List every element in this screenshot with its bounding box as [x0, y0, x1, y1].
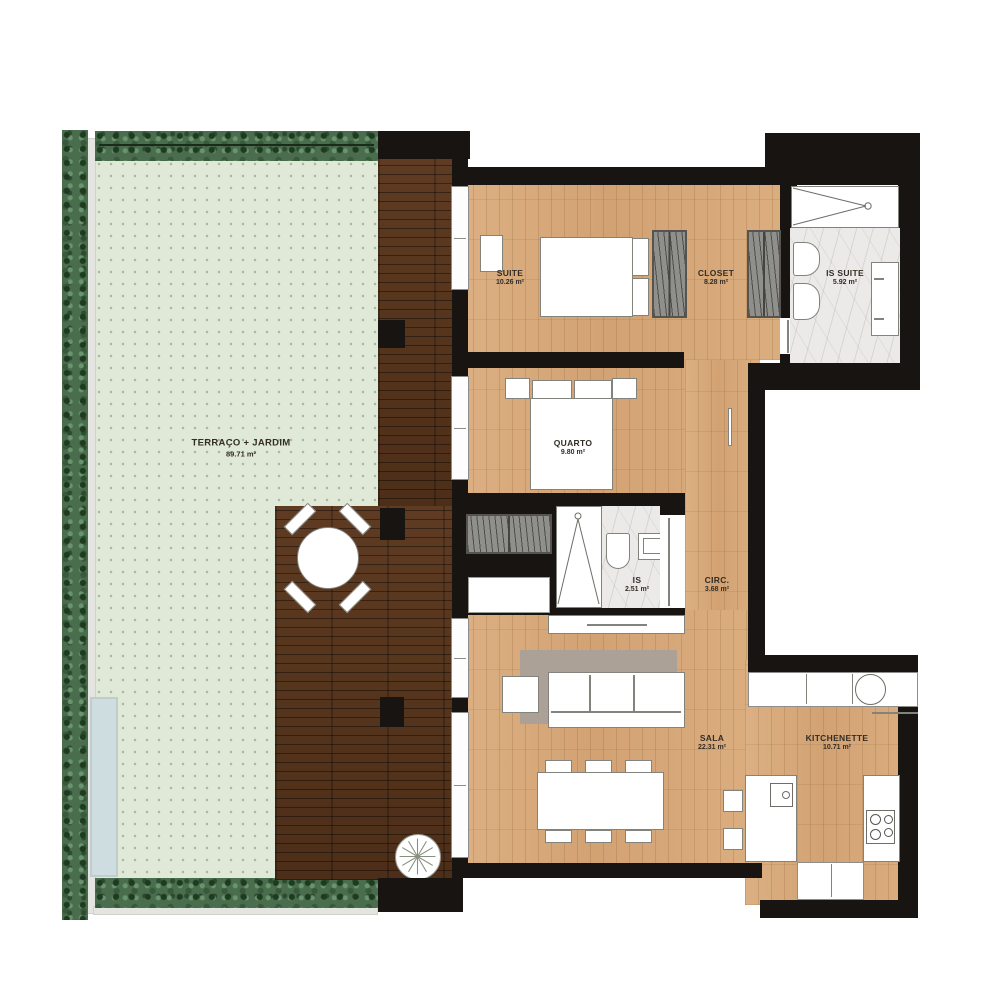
circ-name: CIRC. [705, 575, 730, 585]
quarto-pillow-2 [574, 380, 612, 400]
suite-label: SUITE 10.26 m² [496, 268, 524, 286]
quarto-wardrobe [466, 514, 552, 554]
kitchenette-area: 10.71 m² [806, 744, 869, 751]
burner-4 [884, 828, 893, 837]
island-stool-1 [723, 790, 743, 812]
burner-2 [884, 815, 893, 824]
wall-deck-top [378, 131, 470, 159]
closet-wardrobe-right [747, 230, 781, 318]
oven-knob [782, 791, 790, 799]
is-suite-name: IS SUITE [826, 268, 864, 278]
wall-kitchen-north [760, 655, 918, 672]
is-suite-label: IS SUITE 5.92 m² [826, 268, 864, 286]
wall-north-suite [452, 167, 765, 185]
dining-chair-s1 [545, 830, 572, 843]
window-sala-2 [451, 712, 469, 858]
quarto-area: 9.80 m² [554, 449, 592, 456]
sofa-seam-2 [633, 675, 635, 711]
window-sala-1 [451, 618, 469, 698]
counter-seam-1 [806, 674, 807, 704]
sala-armchair [502, 676, 539, 713]
closet-name: CLOSET [698, 268, 734, 278]
is-door-leaf [668, 518, 670, 606]
floor-plan: TERRAÇO + JARDIM 89.71 m² SUITE 10.26 m²… [0, 0, 984, 1000]
circ-label: CIRC. 3.68 m² [705, 575, 730, 593]
is-door-gap [660, 515, 685, 608]
kitchen-counter-top [748, 672, 918, 707]
is-suite-vanity [871, 262, 899, 336]
wall-kitchen-south [760, 900, 918, 918]
window-suite [451, 186, 469, 290]
counter-edge-line [872, 712, 918, 714]
is-area: 2.51 m² [625, 586, 649, 593]
wall-sala-south [452, 863, 762, 878]
terrace-label: TERRAÇO + JARDIM 89.71 m² [191, 438, 290, 459]
kitchenette-label: KITCHENETTE 10.71 m² [806, 733, 869, 751]
sofa-backrest-line [551, 711, 681, 713]
wall-north-bath [765, 133, 920, 185]
sala-area: 22.31 m² [698, 744, 726, 751]
quarto-nightstand-left [505, 378, 530, 399]
kitchen-island [745, 775, 797, 862]
suite-name: SUITE [496, 268, 524, 278]
is-suite-shower [791, 186, 899, 228]
kitchenette-name: KITCHENETTE [806, 733, 869, 743]
kitchen-counter-right [863, 775, 900, 862]
wall-suite-quarto [452, 352, 684, 368]
oven-icon [770, 783, 793, 807]
quarto-name: QUARTO [554, 438, 592, 448]
deck-post-3 [380, 697, 404, 727]
terrace-area: 89.71 m² [191, 450, 290, 459]
wall-corridor-east [748, 368, 765, 672]
burner-1 [870, 814, 881, 825]
terrace-name: TERRAÇO + JARDIM [191, 438, 290, 449]
door-quarto-leaf [728, 408, 732, 446]
suite-area: 10.26 m² [496, 279, 524, 286]
hedge-bottom [95, 878, 378, 908]
sala-sofa [548, 672, 685, 728]
closet-label: CLOSET 8.28 m² [698, 268, 734, 286]
closet-area: 8.28 m² [698, 279, 734, 286]
quarto-nightstand-right [612, 378, 637, 399]
sala-niche-cabinet [468, 577, 550, 613]
hedge-top [95, 131, 378, 161]
deck-post-1 [378, 320, 405, 348]
suite-bed [540, 237, 633, 317]
sofa-seam-1 [589, 675, 591, 711]
is-shower [556, 506, 602, 608]
wall-south-bath [748, 363, 920, 390]
outdoor-round-table [297, 527, 359, 589]
door-is-suite-leaf [787, 320, 789, 353]
dining-chair-s2 [585, 830, 612, 843]
counter-seam-2 [852, 674, 853, 704]
window-quarto [451, 376, 469, 480]
is-suite-area: 5.92 m² [826, 279, 864, 286]
suite-pillow-1 [632, 238, 649, 276]
suite-bench [480, 235, 503, 272]
deck-post-2 [380, 508, 405, 540]
sala-label: SALA 22.31 m² [698, 733, 726, 751]
is-name: IS [625, 575, 649, 585]
closet-wardrobe-left [652, 230, 687, 318]
counter-seam-3 [831, 864, 832, 897]
sala-sideboard-handle [587, 624, 647, 626]
island-stool-2 [723, 828, 743, 850]
planter-trough [90, 697, 118, 877]
dining-table [537, 772, 664, 830]
burner-3 [870, 829, 881, 840]
tree-top-view-icon [395, 834, 441, 880]
wall-east-bath [898, 133, 920, 390]
sala-name: SALA [698, 733, 726, 743]
round-sink-icon [855, 674, 886, 705]
suite-pillow-2 [632, 278, 649, 316]
is-toilet [606, 533, 630, 569]
wall-deck-south [378, 878, 463, 912]
quarto-label: QUARTO 9.80 m² [554, 438, 592, 456]
is-suite-faucet-2 [874, 318, 884, 320]
is-suite-toilet [793, 242, 820, 276]
is-suite-bidet [793, 283, 820, 320]
hedge-left [62, 130, 88, 920]
is-label: IS 2.51 m² [625, 575, 649, 593]
quarto-pillow-1 [532, 380, 572, 400]
circ-area: 3.68 m² [705, 586, 730, 593]
four-burner-cooktop-icon [866, 810, 895, 844]
is-suite-faucet-1 [874, 278, 884, 280]
sala-sideboard [548, 615, 685, 634]
kitchen-counter-bottom [797, 862, 864, 900]
dining-chair-s3 [625, 830, 652, 843]
